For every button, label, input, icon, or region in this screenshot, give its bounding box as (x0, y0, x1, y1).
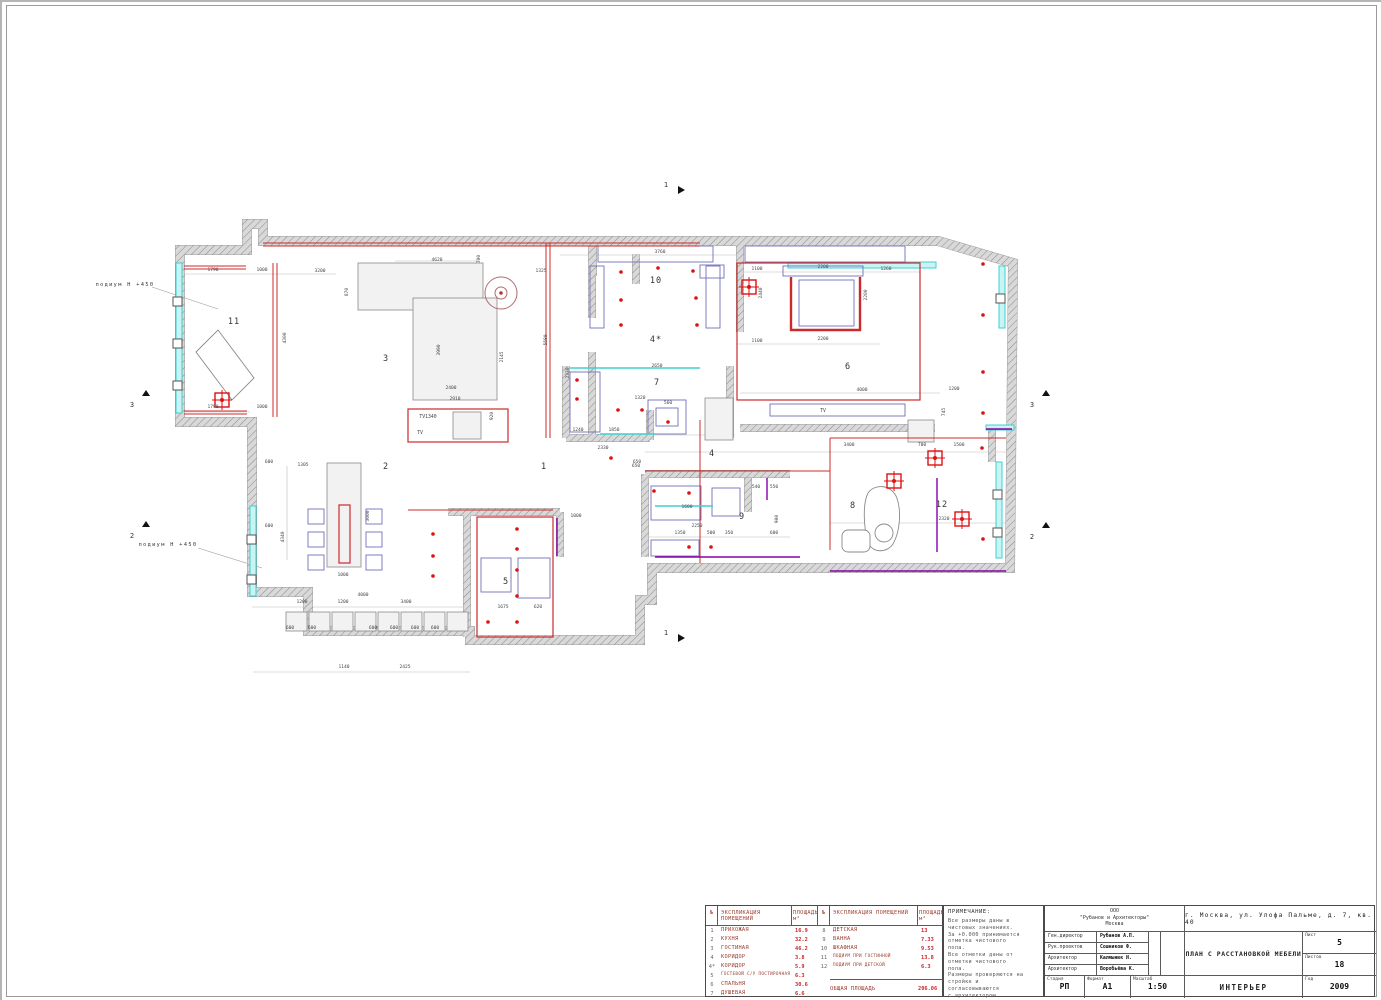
ceiling-light-dot (431, 532, 435, 536)
tv-label: TV1340 (419, 414, 436, 420)
explication-header-area: ПЛОЩАДЬ, м² (792, 906, 818, 926)
section-marker-label: 1 (664, 181, 668, 189)
dimension-label: 4340 (280, 531, 286, 542)
title-block: ООО "Рубанов и Архитекторы" Москва г. Мо… (1044, 905, 1375, 997)
note-line: стройке и (948, 979, 1039, 986)
furniture-outline (453, 412, 481, 439)
sheet-cell: Лист 5 (1303, 932, 1376, 954)
ceiling-light-dot (486, 620, 490, 624)
dimension-label: 1600 (681, 504, 692, 510)
dimension-label: 1260 (880, 266, 891, 272)
dimension-label: 1000 (256, 267, 267, 273)
total-area-value: 206.06 (918, 986, 937, 992)
ceiling-light-dot (981, 537, 985, 541)
explication-cell: СПАЛЬНЯ (718, 980, 795, 989)
explication-cell: 3 (706, 944, 718, 953)
explication-cell: 11 (818, 953, 830, 962)
window-glazing (996, 462, 1002, 558)
signature-col (1149, 932, 1161, 976)
note-line: За +0.000 принимается (948, 932, 1039, 939)
ceiling-light-dot (515, 594, 519, 598)
ceiling-light-dot (515, 527, 519, 531)
explication-cell: 7 (706, 989, 718, 998)
podium-label: подиум Н +450 (96, 282, 155, 288)
glazing-mullion (993, 528, 1002, 537)
explication-cell: 5.9 (792, 962, 821, 971)
explication-cell: 6 (706, 980, 718, 989)
stage-value: РП (1045, 982, 1084, 991)
dimension-label: 3400 (843, 442, 854, 448)
scale-value: 1:50 (1131, 982, 1184, 991)
company-name: ООО "Рубанов и Архитекторы" Москва (1045, 906, 1185, 932)
dimension-label: 3200 (314, 268, 325, 274)
tv-label: TV (417, 430, 423, 436)
section-marker-label: 1 (664, 629, 668, 637)
explication-cell: 46.2 (792, 944, 821, 953)
cabinet-outline (308, 509, 324, 524)
ceiling-light-dot (515, 547, 519, 551)
drawing-title: ПЛАН С РАССТАНОВКОЙ МЕБЕЛИ (1185, 932, 1303, 976)
tv-label: TV (820, 408, 826, 414)
person-name: Сошников Ф. (1097, 943, 1149, 954)
room-number: 10 (650, 276, 662, 286)
room-number: 2 (383, 462, 389, 472)
room-number: 7 (654, 378, 660, 388)
explication-cell: 16.9 (792, 926, 821, 935)
cabinet-outline (651, 540, 699, 556)
note-line: Все отметки даны от (948, 952, 1039, 959)
explication-cell: 10 (818, 944, 830, 953)
dimension-label: 2910 (449, 396, 460, 402)
explication-cell: КОРИДОР (718, 953, 795, 962)
explication-cell: 3.8 (792, 953, 821, 962)
ceiling-light-dot (515, 620, 519, 624)
cabinet-outline (651, 486, 701, 520)
dimension-lines (152, 255, 1006, 672)
cabinet-outline (706, 266, 720, 328)
dimension-label: 600 (770, 530, 779, 536)
glazing-mullion (247, 575, 256, 584)
section-marker-arrow-icon (1042, 522, 1050, 528)
dimension-label: 1200 (296, 599, 307, 605)
sheet-value: 5 (1303, 938, 1376, 947)
note-line: Размеры проверяются на (948, 972, 1039, 979)
ceiling-light-dot (619, 323, 623, 327)
dimension-label: 600 (390, 625, 399, 631)
ceiling-light-dot (640, 408, 644, 412)
furniture-shape (875, 524, 893, 542)
dimension-label: 650 (632, 463, 641, 469)
dimension-label: 500 (707, 530, 716, 536)
dimension-label: 1325 (535, 268, 546, 274)
ceiling-lamp-icon (499, 291, 503, 295)
dimension-label: 1790 (207, 404, 218, 410)
furniture-shape (196, 330, 254, 400)
dimension-label: 2440 (758, 287, 764, 298)
furniture-outline (327, 463, 361, 567)
explication-cell: 8 (818, 926, 830, 935)
dimension-label: 2200 (817, 336, 828, 342)
ceiling-light-dot (981, 411, 985, 415)
survey-cross-icon (925, 448, 945, 468)
section-marker-label: 2 (130, 532, 134, 540)
dimension-label: 1200 (337, 599, 348, 605)
explication-cell: КУХНЯ (718, 935, 795, 944)
year-cell: Год 2009 (1303, 976, 1376, 998)
note-block: ПРИМЕЧАНИЕ: Все размеры даны вчистовых з… (943, 905, 1044, 997)
section-marker-arrow-icon (142, 521, 150, 527)
explication-cell: ГОСТЕВОЙ С/У ПОСТИРОЧНАЯ (718, 971, 795, 980)
furniture-outline (447, 612, 468, 631)
ceiling-light-dot (575, 397, 579, 401)
ceiling-light-dot (980, 446, 984, 450)
dimension-label: 600 (431, 625, 440, 631)
dimension-label: 600 (411, 625, 420, 631)
explication-header-name: ЭКСПЛИКАЦИЯ ПОМЕЩЕНИЙ (718, 906, 792, 926)
dimension-label: 2330 (597, 445, 608, 451)
total-area-row: ОБЩАЯ ПЛОЩАДЬ (830, 979, 918, 998)
dimension-label: 700 (918, 442, 927, 448)
role-label: Архитектор (1045, 965, 1097, 976)
room-number: 11 (228, 317, 240, 327)
total-area-value-cell: 206.06 (918, 979, 944, 998)
cabinet-outline (745, 246, 905, 262)
role-label: Ген.директор (1045, 932, 1097, 943)
person-name: Калмынюк И. (1097, 954, 1149, 965)
glazing-mullion (993, 490, 1002, 499)
ceiling-light-dot (575, 378, 579, 382)
explication-cell: 12 (818, 962, 830, 971)
dimension-label: 2250 (691, 523, 702, 529)
explication-cell: ПРИХОЖАЯ (718, 926, 795, 935)
stage-cell: Стадия РП (1045, 976, 1085, 998)
dimension-label: 560 (664, 400, 673, 406)
sheets-value: 18 (1303, 960, 1376, 969)
dimension-label: 870 (344, 288, 350, 297)
ceiling-light-dot (619, 298, 623, 302)
dimension-label: 600 (308, 625, 317, 631)
dimension-label: 600 (265, 523, 274, 529)
ceiling-light-dot (691, 269, 695, 273)
ceiling-light-dot (694, 296, 698, 300)
dimension-label: 1100 (751, 338, 762, 344)
explication-cell: 32.2 (792, 935, 821, 944)
section-marker-arrow-icon (1042, 390, 1050, 396)
dimension-label: 4620 (431, 257, 442, 263)
explication-cell: ГОСТИНАЯ (718, 944, 795, 953)
dimension-label: 550 (770, 484, 779, 490)
dimension-label: 600 (286, 625, 295, 631)
survey-cross-icon (884, 471, 904, 491)
note-line: согласовываются (948, 986, 1039, 993)
dimension-label: 4000 (856, 387, 867, 393)
date-col (1161, 932, 1185, 976)
note-line: чистовых значениях. (948, 925, 1039, 932)
section-marker-label: 3 (1030, 401, 1034, 409)
project-address: г. Москва, ул. Улофа Пальме, д. 7, кв. 4… (1185, 906, 1376, 932)
format-cell: Формат А1 (1085, 976, 1131, 998)
ceiling-light-dot (666, 420, 670, 424)
room-number: 6 (845, 362, 851, 372)
dimension-label: 4000 (357, 592, 368, 598)
section-marker-label: 3 (130, 401, 134, 409)
note-line: пола. (948, 966, 1039, 973)
room-number: 4 (709, 449, 715, 459)
dimension-label: 1000 (337, 572, 348, 578)
survey-cross-icon (952, 509, 972, 529)
dimension-label: 1000 (570, 513, 581, 519)
explication-cell: 1 (706, 926, 718, 935)
dimension-label: 3990 (436, 344, 442, 355)
furniture-shape (842, 530, 870, 552)
cabinet-outline (770, 404, 905, 416)
total-area-label: ОБЩАЯ ПЛОЩАДЬ (830, 986, 875, 992)
explication-cell: ПОДИУМ ПРИ ГОСТИННОЙ (830, 953, 921, 962)
cabinet-outline (518, 558, 550, 598)
note-line: Все размеры даны в (948, 918, 1039, 925)
ceiling-light-dot (609, 456, 613, 460)
podium-label: подиум Н +450 (139, 542, 198, 548)
drawing-sheet: 1790100032004300179010004620700132537608… (0, 0, 1381, 1000)
glazing-mullion (173, 381, 182, 390)
dimension-label: 745 (941, 408, 947, 417)
explication-cell: 4 (706, 953, 718, 962)
format-value: А1 (1085, 982, 1130, 991)
dimension-label: 2400 (445, 385, 456, 391)
dimension-label: 600 (265, 459, 274, 465)
survey-cross-icon (739, 277, 759, 297)
explication-header-num: № (706, 906, 718, 926)
dimension-label: 1320 (634, 395, 645, 401)
explication-cell: 6.3 (792, 971, 821, 980)
glazing-mullion (996, 294, 1005, 303)
dimension-label: 540 (752, 484, 761, 490)
ceiling-light-dot (656, 266, 660, 270)
dimension-label: 3400 (400, 599, 411, 605)
dimension-label: 1000 (256, 404, 267, 410)
ceiling-light-dot (616, 408, 620, 412)
ceiling-light-dot (981, 370, 985, 374)
room-number: 8 (850, 501, 856, 511)
dimension-label: 1100 (751, 266, 762, 272)
dimension-label: 2145 (499, 351, 505, 362)
ceiling-light-dot (515, 568, 519, 572)
ceiling-light-dot (431, 574, 435, 578)
explication-cell: 5 (706, 971, 718, 980)
dimension-label: 700 (476, 255, 482, 264)
explication-cell: 9 (818, 935, 830, 944)
dimension-label: 620 (534, 604, 543, 610)
cabinet-outline (799, 280, 854, 326)
ceiling-light-dot (652, 489, 656, 493)
explication-cell: ВАННА (830, 935, 921, 944)
furniture-outline (413, 298, 497, 400)
cabinet-outline (308, 555, 324, 570)
dimension-label: 5580 (543, 334, 549, 345)
cabinet-outline (366, 555, 382, 570)
ceiling-light-dot (981, 313, 985, 317)
explication-cell: 6.6 (792, 989, 821, 998)
dimension-label: 1200 (948, 386, 959, 392)
room-number: 12 (936, 500, 948, 510)
explication-cell: ПОДИУМ ПРИ ДЕТСКОЙ (830, 962, 921, 971)
explication-cell: 4* (706, 962, 718, 971)
dimension-label: 2650 (651, 363, 662, 369)
dimension-label: 900 (774, 515, 780, 524)
explication-cell: ШКАФНАЯ (830, 944, 921, 953)
glazing-mullion (247, 535, 256, 544)
dimension-label: 2320 (938, 516, 949, 522)
dimension-label: 1790 (207, 267, 218, 273)
note-title: ПРИМЕЧАНИЕ: (948, 909, 1039, 915)
note-line: с архитектором. (948, 993, 1039, 1000)
explication-cell: 30.6 (792, 980, 821, 989)
dimension-label: 2200 (817, 264, 828, 270)
dimension-label: 3000 (365, 510, 371, 521)
explication-table: № ЭКСПЛИКАЦИЯ ПОМЕЩЕНИЙ ПЛОЩАДЬ, м² № ЭК… (705, 905, 943, 997)
dimension-label: 1850 (608, 427, 619, 433)
section-marker-arrow-icon (142, 390, 150, 396)
section-marker-arrow-icon (678, 186, 685, 194)
floor-plan: 1790100032004300179010004620700132537608… (0, 0, 1381, 1000)
note-line: отметки чистового (948, 959, 1039, 966)
room-number: 9 (739, 512, 745, 522)
explication-cell: 2 (706, 935, 718, 944)
cabinet-outline (308, 532, 324, 547)
role-label: Рук.проектов (1045, 943, 1097, 954)
dimension-label: 1240 (572, 427, 583, 433)
ceiling-light-dot (619, 270, 623, 274)
note-text: Все размеры даны вчистовых значениях.За … (948, 918, 1039, 1000)
furniture-outline (332, 612, 353, 631)
role-label: Архитектор (1045, 954, 1097, 965)
year-value: 2009 (1303, 982, 1376, 991)
glazing-mullion (173, 297, 182, 306)
explication-cell: ДЕТСКАЯ (830, 926, 921, 935)
ceiling-light-dot (431, 554, 435, 558)
dimension-label: 1140 (338, 664, 349, 670)
dimension-label: 2425 (399, 664, 410, 670)
dimension-label: 920 (489, 412, 495, 421)
dimension-label: 1675 (497, 604, 508, 610)
dimension-label: 1500 (953, 442, 964, 448)
dimension-label: 1350 (674, 530, 685, 536)
explication-header-area2: ПЛОЩАДЬ, м² (918, 906, 944, 926)
cabinet-outline (366, 532, 382, 547)
glazing-mullion (173, 339, 182, 348)
furniture-gray (196, 263, 934, 631)
scale-cell: Масштаб 1:50 (1131, 976, 1185, 998)
ceiling-light-dot (709, 545, 713, 549)
dimension-label: 600 (369, 625, 378, 631)
dimension-label: 1305 (297, 462, 308, 468)
explication-header-num2: № (818, 906, 830, 926)
red-boundary (477, 517, 553, 637)
section-marker-label: 2 (1030, 533, 1034, 541)
furniture-outline (908, 420, 934, 442)
dimension-label: 350 (725, 530, 734, 536)
dimension-label: 3760 (654, 249, 665, 255)
dimension-label: 2330 (565, 367, 571, 378)
red-boundary (737, 263, 920, 400)
room-number: 3 (383, 354, 389, 364)
cabinet-outline (712, 488, 740, 516)
ceiling-light-dot (695, 323, 699, 327)
dimension-label: 4300 (282, 332, 288, 343)
person-name: Рубанов А.П. (1097, 932, 1149, 943)
room-number: 1 (541, 462, 547, 472)
explication-cell: КОРИДОР (718, 962, 795, 971)
ceiling-light-dot (687, 491, 691, 495)
section-title: ИНТЕРЬЕР (1185, 976, 1303, 998)
explication-cell: ДУШЕВАЯ (718, 989, 795, 998)
sheets-cell: Листов 18 (1303, 954, 1376, 976)
section-marker-arrow-icon (678, 634, 685, 642)
dimension-label: 2200 (863, 289, 869, 300)
note-line: отметка чистового (948, 938, 1039, 945)
explication-header-name2: ЭКСПЛИКАЦИЯ ПОМЕЩЕНИЙ (830, 906, 918, 926)
note-line: пола. (948, 945, 1039, 952)
room-number: 4* (650, 335, 662, 345)
person-name: Воробьёва К. (1097, 965, 1149, 976)
ceiling-light-dot (981, 262, 985, 266)
room-number: 5 (503, 577, 509, 587)
ceiling-light-dot (687, 545, 691, 549)
furniture-outline (705, 398, 733, 440)
